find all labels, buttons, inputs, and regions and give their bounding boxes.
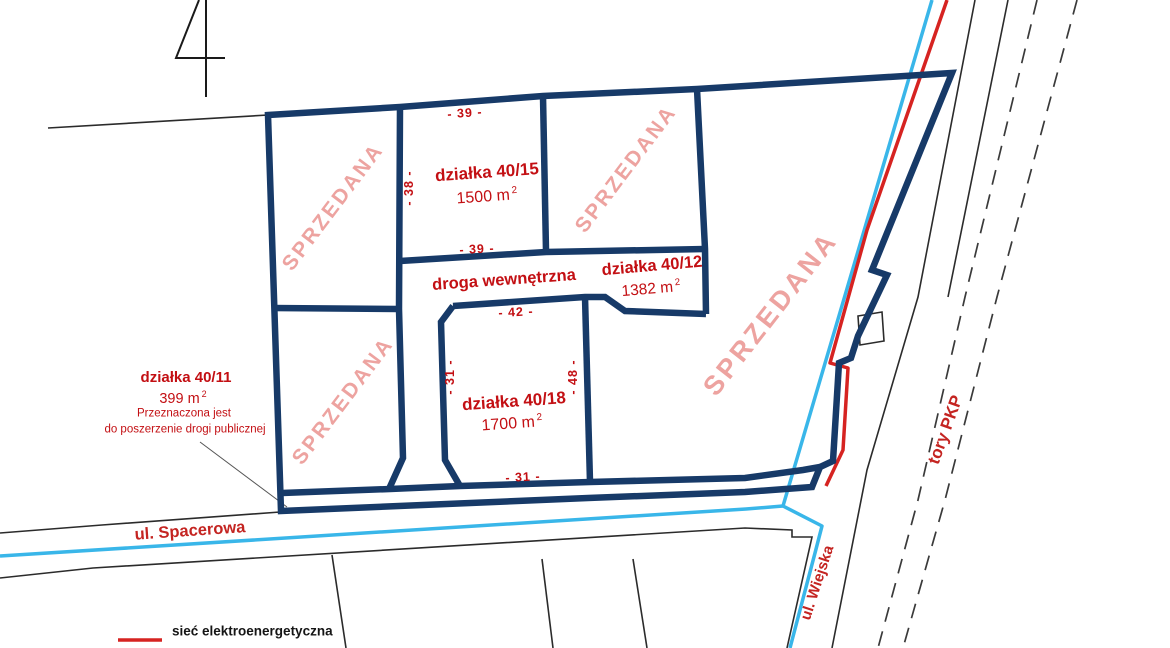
plot-40-18-right-wall: [585, 297, 590, 482]
plot-40-18-left-wall: [441, 306, 460, 486]
legend-electric-label: sieć elektroenergetyczna: [172, 625, 333, 640]
divider-left: [389, 107, 403, 489]
divider-right: [697, 89, 706, 314]
dim-38-left: - 38 -: [403, 170, 417, 205]
dim-48-right: - 48 -: [567, 359, 581, 394]
plot-40-11-area: 399 m2: [159, 390, 206, 408]
dim-31-bottom: - 31 -: [505, 470, 541, 486]
divider-horizontal: [272, 308, 399, 309]
water-line: [0, 0, 932, 648]
plot-40-11-note-line2: do poszerzenie drogi publicznej: [104, 424, 265, 437]
leader-line: [200, 442, 287, 507]
plot-40-11-name: działka 40/11: [141, 370, 232, 387]
plot-40-11-note-line1: Przeznaczona jest: [137, 408, 231, 421]
dim-39-bottom: - 39 -: [459, 242, 495, 258]
road-bottom-line: [453, 297, 706, 314]
parcel-number-4-glyph: [176, 0, 225, 97]
plot-map: SPRZEDANA SPRZEDANA SPRZEDANA SPRZEDANA …: [0, 0, 1170, 648]
dim-42-top: - 42 -: [498, 305, 534, 321]
divider-mid: [543, 96, 546, 251]
railway-dashed-lines: [878, 0, 1077, 648]
dim-31-left: - 31 -: [444, 359, 458, 394]
dim-39-top: - 39 -: [447, 106, 483, 122]
map-canvas: [0, 0, 1170, 648]
